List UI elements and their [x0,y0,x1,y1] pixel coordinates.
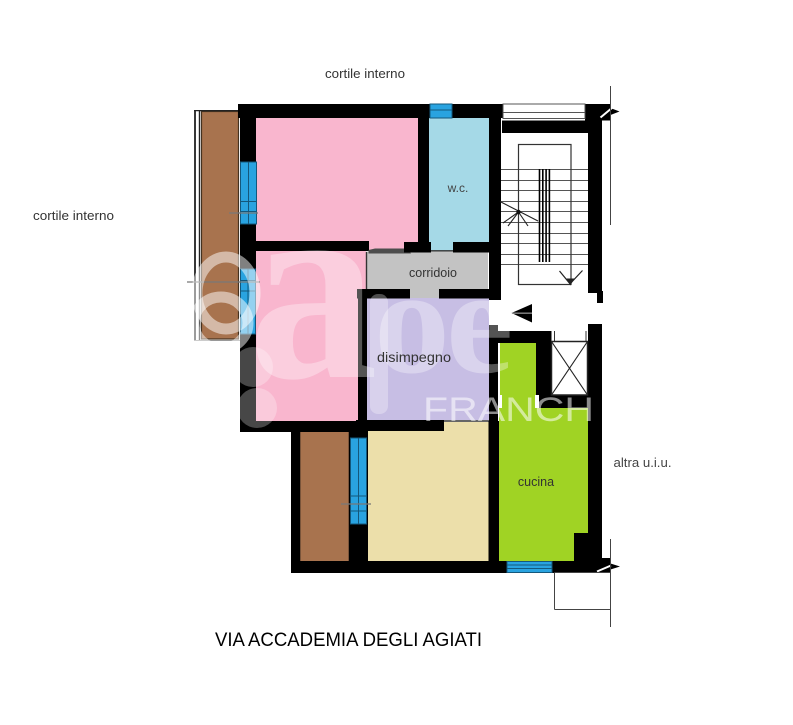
svg-text:FRANCH: FRANCH [423,391,594,429]
svg-text:disimpegno: disimpegno [377,349,451,365]
svg-text:w.c.: w.c. [447,181,469,195]
svg-text:VIA ACCADEMIA DEGLI AGIATI: VIA ACCADEMIA DEGLI AGIATI [215,630,482,651]
svg-text:o: o [374,237,450,405]
svg-text:e: e [446,237,513,405]
svg-text:cortile interno: cortile interno [325,66,405,81]
svg-text:cucina: cucina [518,475,554,489]
svg-text:corridoio: corridoio [409,266,457,280]
svg-text:altra u.i.u.: altra u.i.u. [614,455,672,470]
svg-text:cortile interno: cortile interno [33,208,114,223]
